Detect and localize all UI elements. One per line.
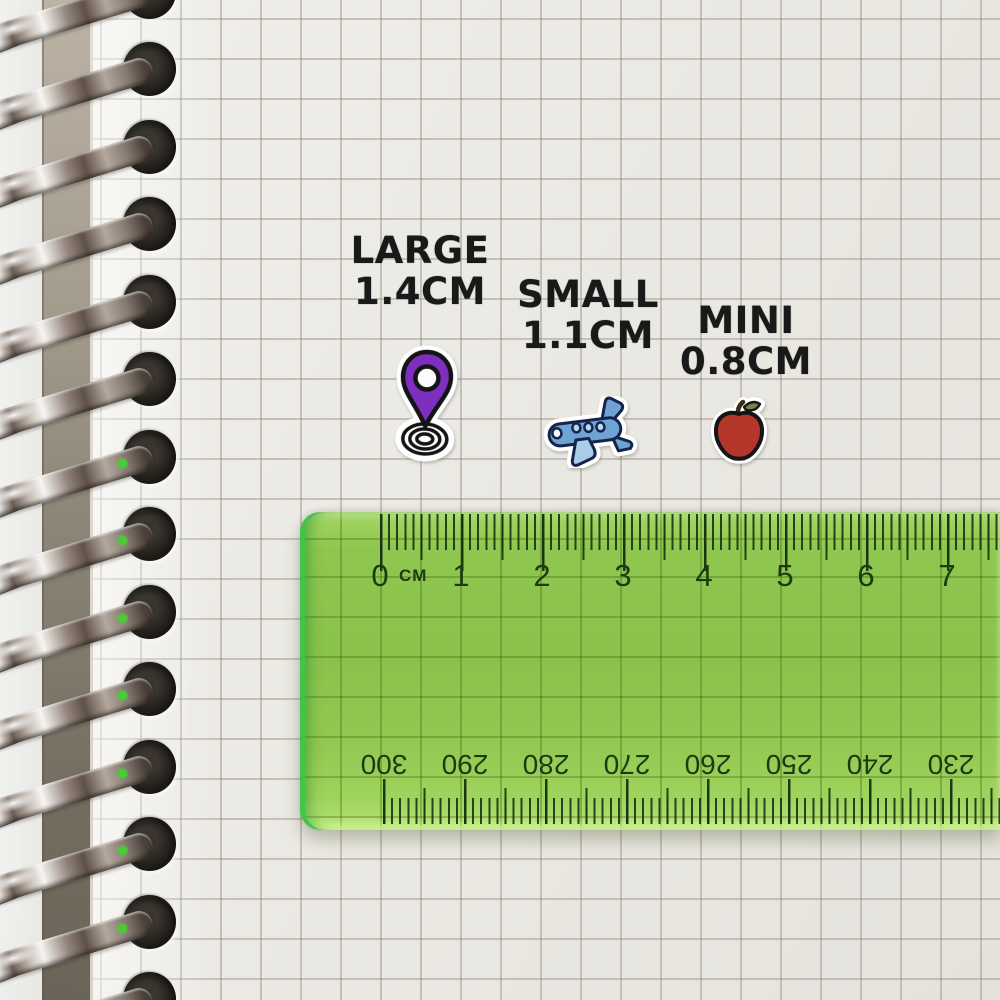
label-large-name: LARGE (340, 230, 500, 271)
ruler-top-number: 2 (522, 558, 562, 594)
ruler-bottom-number: 290 (439, 748, 491, 780)
airplane-sticker (543, 396, 641, 472)
ruler-bottom-number: 230 (925, 748, 977, 780)
label-large-size: 1.4CM (340, 271, 500, 312)
ruler: 0 CM 1 2 3 4 5 6 7 300 290 280 270 260 2… (300, 512, 1000, 830)
ruler-top-number: 0 (360, 558, 400, 594)
photo-canvas: LARGE 1.4CM SMALL 1.1CM MINI 0.8CM (0, 0, 1000, 1000)
apple-sticker (708, 397, 770, 471)
label-small-name: SMALL (508, 274, 668, 315)
ruler-top-number: 6 (846, 558, 886, 594)
ruler-top-number: 1 (441, 558, 481, 594)
ruler-bottom-number: 250 (763, 748, 815, 780)
location-pin-sticker (389, 343, 463, 467)
ruler-top-number: 4 (684, 558, 724, 594)
location-pin-icon (389, 343, 463, 463)
ruler-top-number: 5 (765, 558, 805, 594)
label-mini-size: 0.8CM (666, 341, 826, 382)
ruler-top-number: 7 (927, 558, 967, 594)
ruler-top-number: 3 (603, 558, 643, 594)
ruler-bottom-mm-ticks (383, 798, 1000, 824)
apple-icon (708, 397, 770, 467)
ruler-bottom-number: 280 (520, 748, 572, 780)
ruler-unit-label: CM (399, 566, 427, 586)
ruler-bottom-number: 240 (844, 748, 896, 780)
airplane-icon (543, 396, 641, 468)
label-mini: MINI 0.8CM (666, 300, 826, 382)
ruler-bottom-number: 270 (601, 748, 653, 780)
ruler-bottom-number: 300 (358, 748, 410, 780)
label-mini-name: MINI (666, 300, 826, 341)
ruler-top-mm-ticks (380, 514, 1000, 550)
label-small: SMALL 1.1CM (508, 274, 668, 356)
ruler-bottom-number: 260 (682, 748, 734, 780)
label-large: LARGE 1.4CM (340, 230, 500, 312)
label-small-size: 1.1CM (508, 315, 668, 356)
